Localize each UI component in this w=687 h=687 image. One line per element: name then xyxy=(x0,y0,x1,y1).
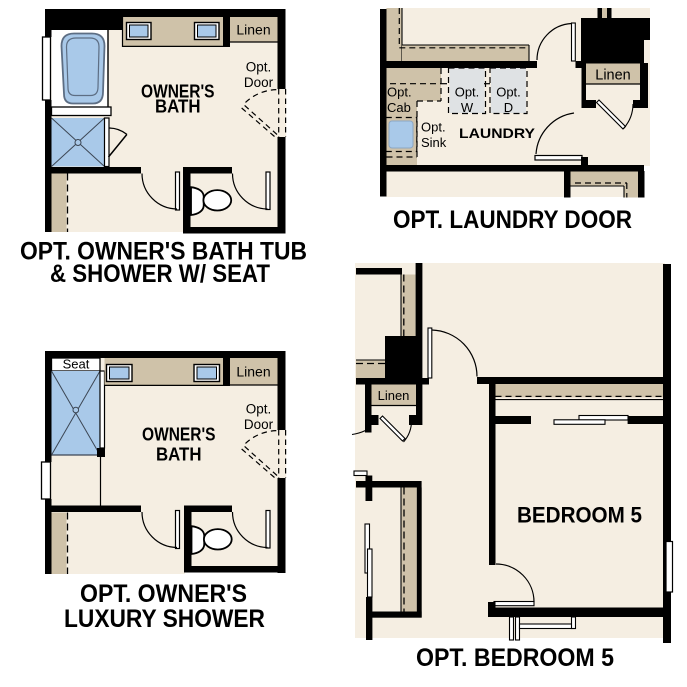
svg-text:BATH: BATH xyxy=(156,445,202,465)
svg-text:W: W xyxy=(461,100,474,115)
svg-text:D: D xyxy=(504,100,513,115)
svg-text:Linen: Linen xyxy=(236,22,270,38)
svg-text:BATH: BATH xyxy=(155,97,201,117)
svg-text:Opt.: Opt. xyxy=(246,60,272,75)
svg-text:Linen: Linen xyxy=(378,388,410,403)
svg-text:LUXURY SHOWER: LUXURY SHOWER xyxy=(64,605,265,633)
svg-text:Door: Door xyxy=(244,417,274,432)
svg-text:LAUNDRY: LAUNDRY xyxy=(459,125,536,141)
svg-text:OWNER'S: OWNER'S xyxy=(142,425,216,445)
svg-text:Opt.: Opt. xyxy=(496,85,521,100)
svg-text:Linen: Linen xyxy=(236,364,270,380)
svg-text:Door: Door xyxy=(244,75,274,90)
svg-text:Cab: Cab xyxy=(387,100,411,115)
svg-text:Opt.: Opt. xyxy=(387,85,412,100)
svg-text:Opt.: Opt. xyxy=(421,120,446,135)
svg-text:Opt.: Opt. xyxy=(455,85,480,100)
svg-text:& SHOWER W/ SEAT: & SHOWER W/ SEAT xyxy=(50,260,270,288)
svg-text:Linen: Linen xyxy=(595,68,630,84)
svg-text:Seat: Seat xyxy=(63,357,90,372)
svg-text:OPT. OWNER'S: OPT. OWNER'S xyxy=(80,580,247,608)
svg-text:Sink: Sink xyxy=(421,135,447,150)
svg-text:OPT. LAUNDRY DOOR: OPT. LAUNDRY DOOR xyxy=(393,206,632,234)
svg-text:BEDROOM 5: BEDROOM 5 xyxy=(517,503,642,528)
svg-text:Opt.: Opt. xyxy=(246,402,272,417)
svg-text:OPT. BEDROOM 5: OPT. BEDROOM 5 xyxy=(416,644,614,672)
